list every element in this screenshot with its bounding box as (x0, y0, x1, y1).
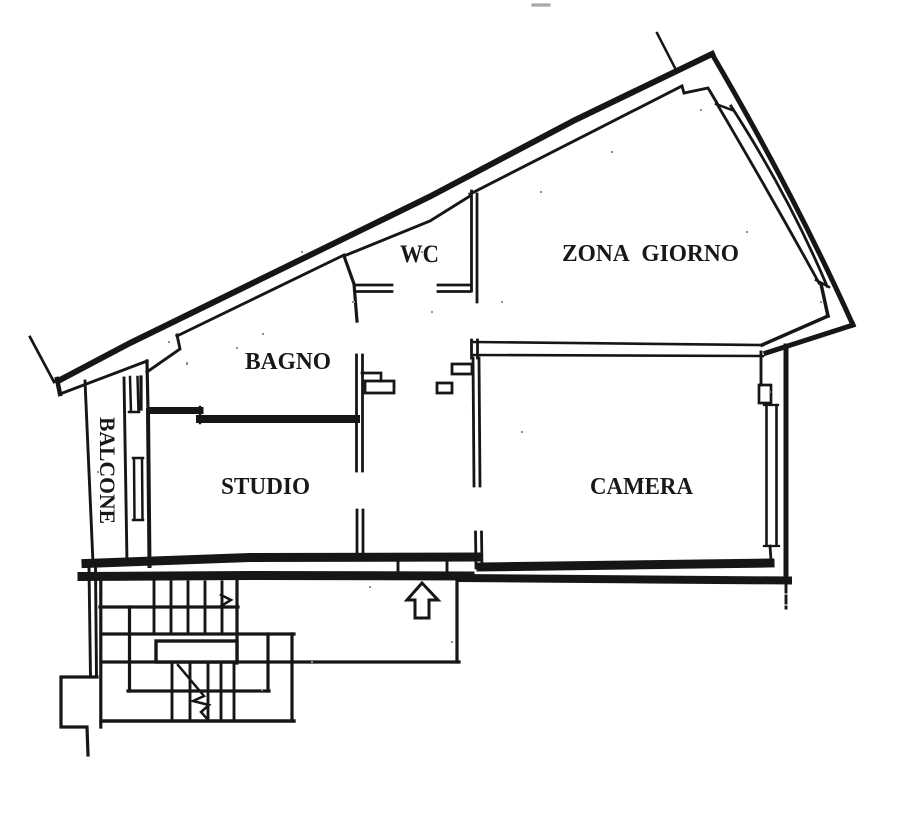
svg-text:CAMERA: CAMERA (590, 474, 694, 500)
svg-text:WC: WC (400, 241, 439, 268)
svg-text:BALCONE: BALCONE (95, 417, 120, 524)
svg-text:ZONA GIORNO: ZONA GIORNO (562, 240, 739, 267)
svg-text:BAGNO: BAGNO (245, 348, 331, 375)
svg-text:STUDIO: STUDIO (221, 474, 310, 500)
